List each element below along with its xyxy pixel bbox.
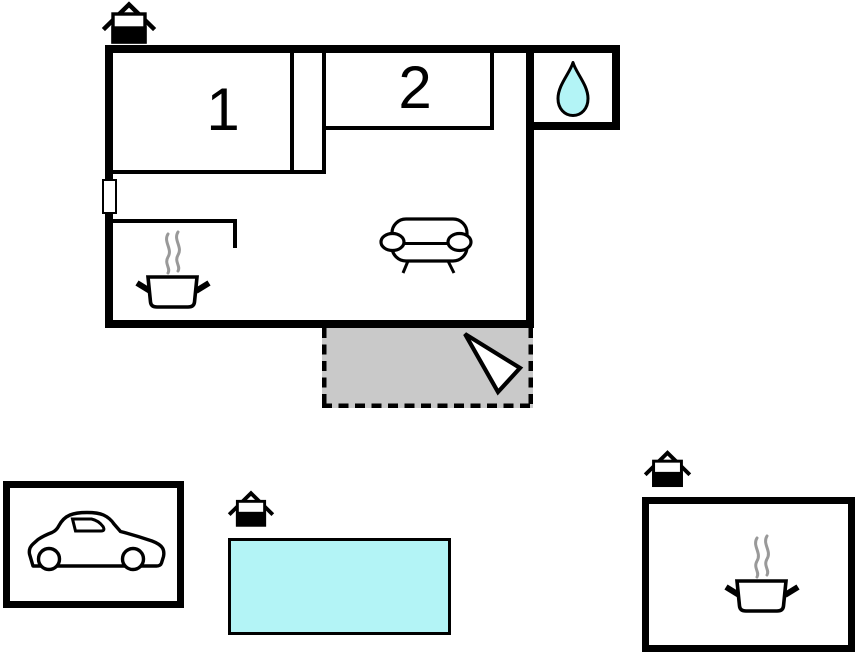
rooms-bottom-partition (113, 170, 326, 174)
sofa-icon (378, 212, 478, 276)
room2-left-partition (322, 53, 326, 174)
entrance-arrow-icon (455, 325, 535, 400)
floor-plan-canvas: 1 2 (0, 0, 860, 652)
wall-bathroom-right (612, 45, 620, 130)
house-icon (228, 487, 274, 531)
room2-bottom-partition (322, 126, 494, 130)
room1-right-partition (290, 53, 294, 173)
car-icon (25, 507, 170, 573)
house-icon (644, 447, 691, 491)
room-1-label: 1 (193, 80, 253, 140)
wall-bathroom-bottom (526, 122, 620, 130)
annex-pot-icon (723, 533, 801, 615)
room2-right-partition (490, 53, 494, 130)
water-drop-icon (555, 60, 591, 118)
kitchen-partition-vertical (233, 219, 237, 248)
wall-right (526, 45, 534, 328)
kitchen-partition-horizontal (113, 219, 237, 223)
wall-top (105, 45, 620, 53)
door-window (102, 179, 117, 214)
room-2-label: 2 (385, 58, 445, 118)
kitchen-pot-icon (134, 229, 212, 311)
pool-area (228, 538, 451, 635)
house-icon (102, 1, 156, 45)
